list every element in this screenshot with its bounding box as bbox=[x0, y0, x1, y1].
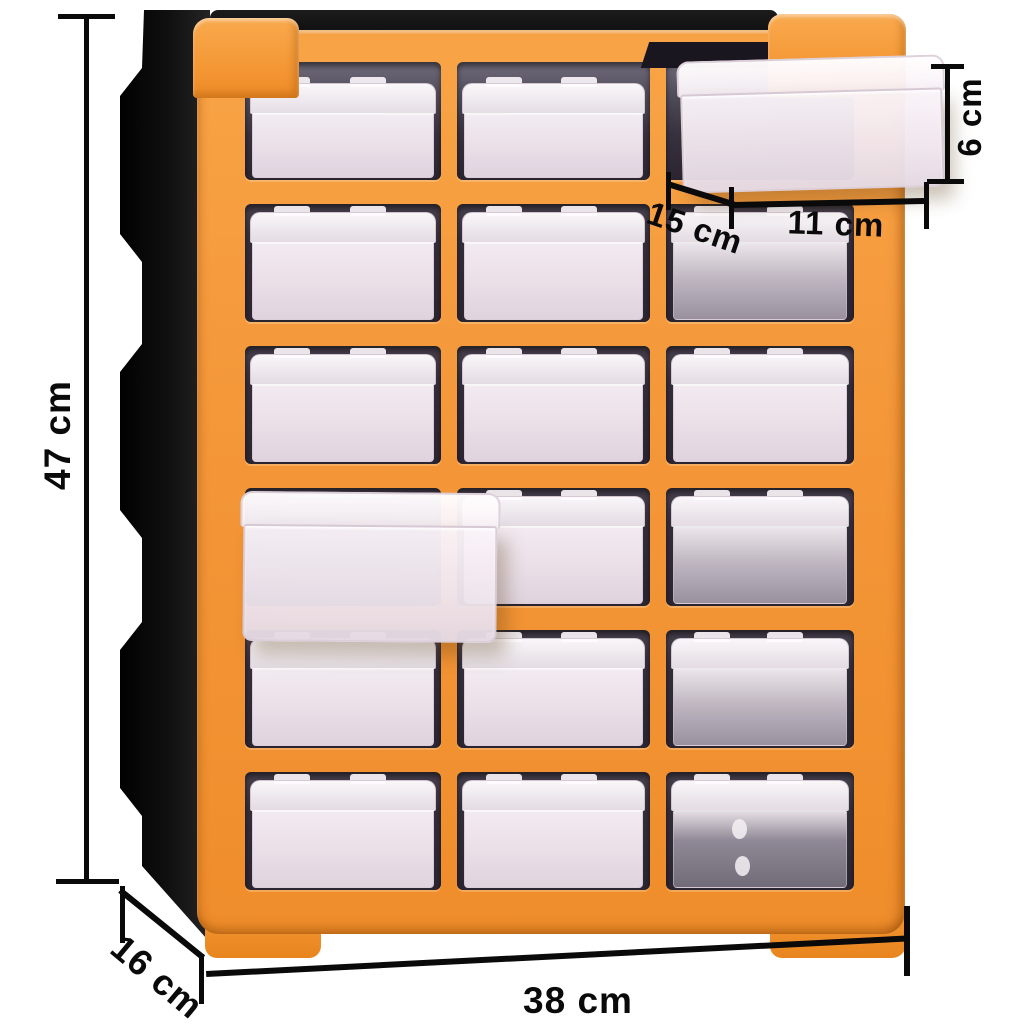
drawer bbox=[250, 354, 436, 462]
drawer bbox=[462, 780, 645, 888]
dimension-drawer-height-label: 6 cm bbox=[951, 72, 989, 162]
drawer-lip bbox=[462, 780, 645, 811]
drawer-opening bbox=[666, 630, 854, 748]
drawer-body bbox=[673, 384, 847, 462]
drawer bbox=[671, 354, 849, 462]
drawer bbox=[250, 638, 436, 746]
drawer-lip bbox=[671, 638, 849, 669]
drawer-opening bbox=[457, 772, 650, 890]
drawer bbox=[671, 496, 849, 604]
drawer-opening bbox=[245, 630, 441, 748]
drawer-body bbox=[464, 113, 643, 178]
drawer-opening bbox=[245, 204, 441, 322]
drawer-pulled-out-top-right bbox=[676, 54, 948, 193]
drawer-lip bbox=[671, 780, 849, 811]
drawer-lip bbox=[250, 354, 436, 385]
drawer-lip bbox=[250, 638, 436, 669]
dimension-line bbox=[84, 16, 89, 882]
frame-corner-cap-left bbox=[193, 18, 299, 98]
drawer-opening bbox=[666, 488, 854, 606]
drawer-back-hole bbox=[732, 819, 747, 839]
drawer-body bbox=[252, 384, 434, 462]
drawer-opening bbox=[245, 772, 441, 890]
drawer-body bbox=[252, 242, 434, 320]
drawer bbox=[671, 780, 849, 888]
drawer bbox=[462, 638, 645, 746]
drawer-body bbox=[464, 384, 643, 462]
drawer-opening bbox=[457, 62, 650, 180]
dimension-tick bbox=[904, 906, 910, 976]
dimension-tick bbox=[56, 879, 119, 884]
drawer bbox=[671, 638, 849, 746]
drawer-body bbox=[464, 810, 643, 888]
drawer-body bbox=[673, 668, 847, 746]
dimension-drawer-width-label: 11 cm bbox=[775, 203, 896, 245]
dimension-tick bbox=[927, 179, 964, 184]
drawer-body bbox=[252, 113, 434, 178]
drawer-lip bbox=[250, 780, 436, 811]
product-dimension-diagram: 47 cm 16 cm 38 cm 6 cm 15 cm 11 cm bbox=[0, 0, 1024, 1024]
dimension-width-label: 38 cm bbox=[498, 980, 658, 1022]
organiser-cabinet bbox=[118, 6, 910, 958]
drawer-opening bbox=[245, 346, 441, 464]
drawer-opening bbox=[666, 346, 854, 464]
drawer-body bbox=[673, 810, 847, 888]
drawer-opening bbox=[457, 630, 650, 748]
drawer-pulled-out-middle-left bbox=[239, 491, 500, 643]
drawer-lip bbox=[462, 212, 645, 243]
drawer bbox=[462, 354, 645, 462]
drawer-lip bbox=[462, 354, 645, 385]
drawer-body bbox=[252, 668, 434, 746]
drawer-body bbox=[680, 87, 945, 193]
drawer-body bbox=[464, 668, 643, 746]
drawer-body bbox=[673, 526, 847, 604]
drawer-body bbox=[242, 524, 497, 643]
drawer bbox=[250, 780, 436, 888]
drawer-lip bbox=[250, 212, 436, 243]
dimension-tick bbox=[924, 182, 929, 229]
drawer-body bbox=[464, 242, 643, 320]
dimension-height-label: 47 cm bbox=[37, 390, 79, 490]
drawer-opening bbox=[457, 346, 650, 464]
drawer bbox=[250, 212, 436, 320]
drawer-lip bbox=[671, 496, 849, 527]
drawer-body bbox=[673, 242, 847, 320]
drawer-back-hole bbox=[735, 856, 750, 876]
drawer-opening bbox=[666, 772, 854, 890]
drawer-opening bbox=[457, 204, 650, 322]
drawer-body bbox=[252, 810, 434, 888]
dimension-tick bbox=[58, 14, 115, 19]
drawer bbox=[462, 83, 645, 178]
dimension-line bbox=[945, 66, 950, 184]
drawer-lip bbox=[671, 354, 849, 385]
drawer-lip bbox=[462, 83, 645, 114]
dimension-tick bbox=[931, 64, 964, 69]
drawer bbox=[462, 212, 645, 320]
